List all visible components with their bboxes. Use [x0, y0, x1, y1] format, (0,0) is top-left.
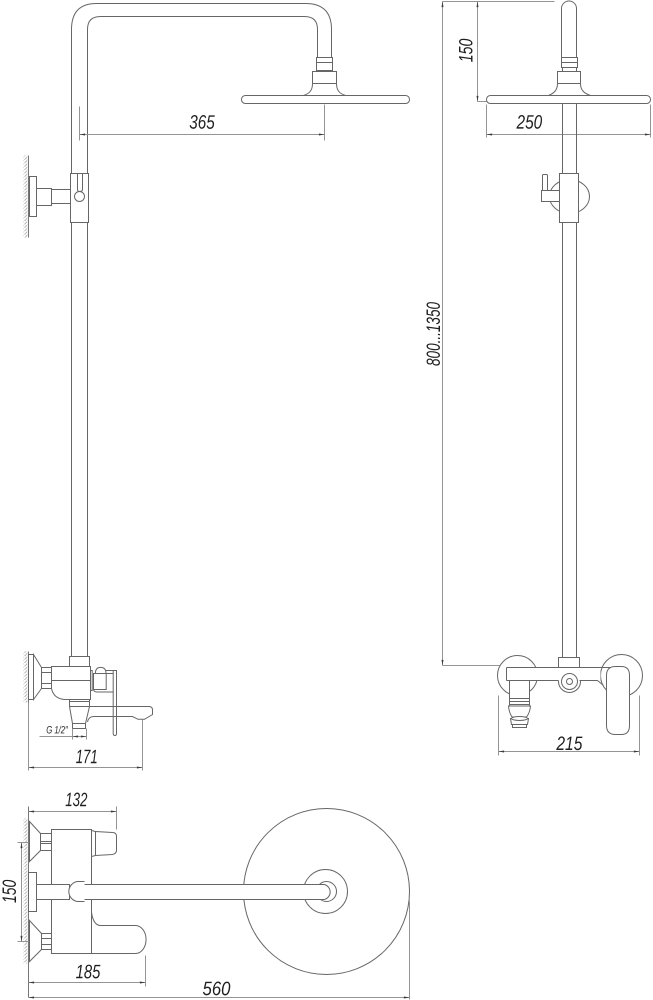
svg-text:365: 365 [189, 112, 215, 134]
svg-text:G 1/2″: G 1/2″ [46, 724, 68, 736]
svg-text:215: 215 [556, 733, 583, 755]
svg-text:150: 150 [456, 38, 478, 62]
svg-text:800...1350: 800...1350 [423, 302, 445, 366]
svg-text:250: 250 [516, 112, 543, 134]
svg-text:150: 150 [0, 880, 21, 903]
svg-text:560: 560 [203, 978, 231, 1000]
svg-text:171: 171 [76, 746, 98, 768]
svg-text:132: 132 [65, 789, 87, 811]
svg-text:185: 185 [76, 961, 101, 983]
